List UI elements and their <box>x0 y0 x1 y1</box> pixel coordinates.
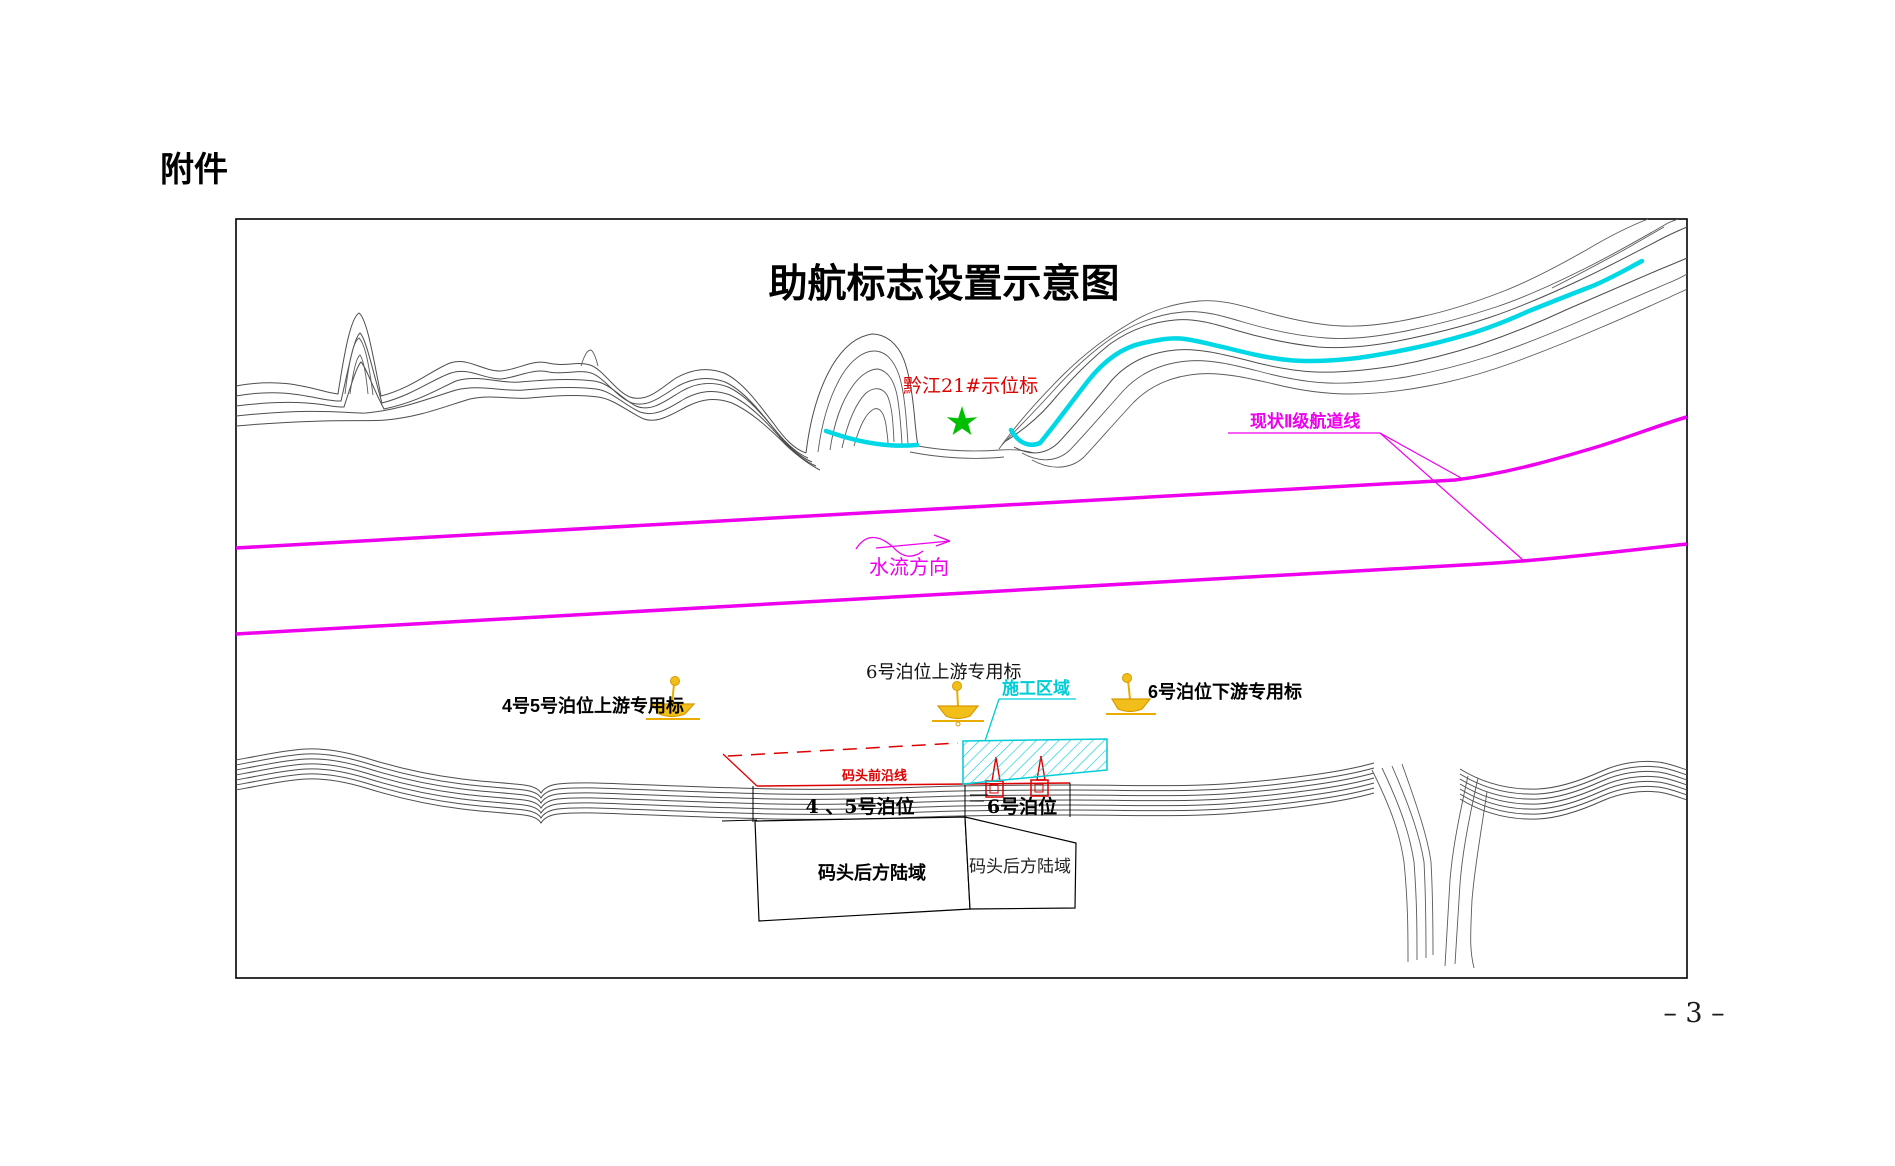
attachment-label: 附件 <box>160 151 228 189</box>
channel-line-label: 现状Ⅱ级航道线 <box>1250 411 1360 431</box>
flow-direction-label: 水流方向 <box>869 555 949 579</box>
station-mark-label: 黔江21#示位标 <box>903 375 1038 397</box>
land-right-label: 码头后方陆域 <box>969 857 1071 877</box>
drawing-canvas: 附件 – 3 – 助航标志设置示意图 <box>0 0 1895 1166</box>
buoy-downstream-6-label: 6号泊位下游专用标 <box>1148 681 1302 702</box>
berth-45-label: 4 、5号泊位 <box>805 795 914 818</box>
wharf-front-line-label: 码头前沿线 <box>842 768 907 783</box>
berth-6-label: 6号泊位 <box>987 795 1057 818</box>
land-left-label: 码头后方陆域 <box>818 862 926 884</box>
page-number: – 3 – <box>1663 998 1724 1029</box>
buoy-upstream-6-label: 6号泊位上游专用标 <box>866 662 1021 683</box>
document-page: 附件 – 3 – 助航标志设置示意图 <box>0 0 1895 1166</box>
diagram-title: 助航标志设置示意图 <box>768 261 1119 307</box>
buoy-upstream-45-label: 4号5号泊位上游专用标 <box>502 695 684 716</box>
